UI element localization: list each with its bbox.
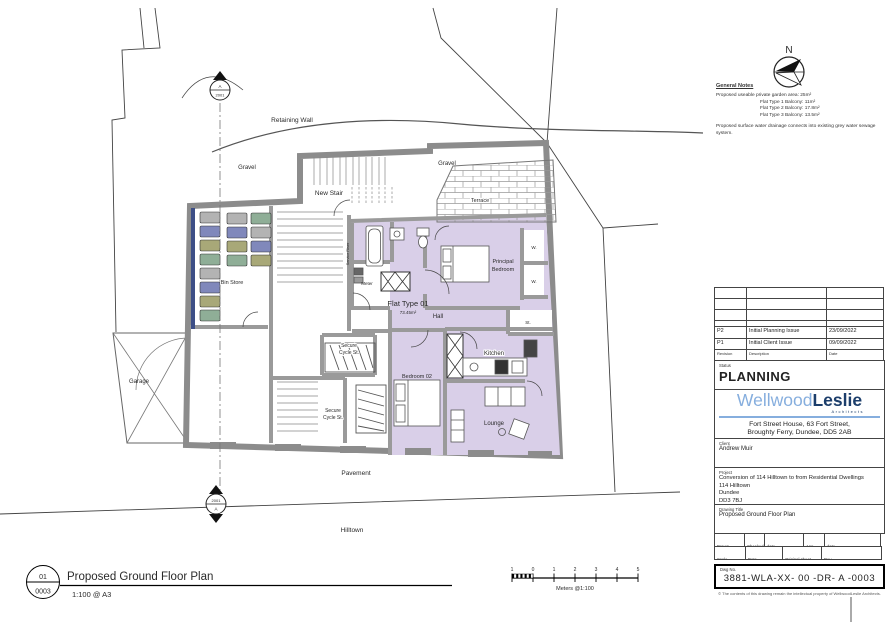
fridge [524,340,537,357]
title-block: P2 Initial Planning Issue 23/09/2022 P1 … [714,288,885,596]
wc [417,228,429,236]
bedroom-02-label: Bedroom 02 [402,374,432,380]
bin-store-label: Bin Store [221,280,244,286]
svg-text:2001: 2001 [216,93,226,98]
svg-text:1: 1 [511,567,514,573]
wellwood-leslie-logo: WellwoodLeslie [717,392,882,410]
client-name: Andrew Muir [719,446,880,452]
project-line: 114 Hilltown [719,483,880,491]
drawing-number-box: Dwg No. 3881-WLA-XX- 00 -DR- A -0003 [714,564,885,589]
project-box: Project Conversion of 114 Hilltown to fr… [714,467,885,505]
sink [390,228,404,240]
svg-text:2001: 2001 [212,498,222,503]
status-value: PLANNING [719,369,880,384]
svg-text:1: 1 [553,567,556,573]
drawing-sheet: A 2001 2001 A Retaining Wall Gravel Grav… [0,0,886,624]
project-line: Dundee [719,490,880,498]
drawing-title-box: Drawing Title Proposed Ground Floor Plan [714,504,885,534]
flat-area-label: 73.45m² [400,310,417,315]
scale-bar-label: Meters @1:100 [556,586,594,592]
sofa [485,387,525,406]
hilltown-label: Hilltown [341,527,364,534]
logo-rule [719,416,880,418]
client-box: Client Andrew Muir [714,438,885,468]
general-notes-title: General Notes [716,83,884,90]
secure-cycle-top-label: Secure [341,343,357,349]
logo-box: WellwoodLeslie Architects Fort Street Ho… [714,389,885,439]
svg-text:2: 2 [574,567,577,573]
project-line: Conversion of 114 Hilltown to from Resid… [719,475,880,483]
garage-label: Garage [129,379,150,385]
footer-scale-note: 1:100 @ A3 [72,590,111,599]
service-riser-label: Service Riser [346,242,350,265]
meta-row-1: DrawnRIH CheckedS.McP dateSept 22' AppS.… [714,533,885,547]
oven [495,360,508,374]
flat-type-label: Flat Type 01 [387,299,428,308]
kitchen-label: Kitchen [484,351,504,357]
gravel-right-label: Gravel [438,161,456,167]
north-arrow-icon: N [774,45,804,87]
section-marker-top: A 2001 [210,71,230,100]
terrace-area [437,160,556,222]
gravel-left-label: Gravel [238,165,256,171]
shelf [451,410,464,442]
copyright-line: © The contents of this drawing remain th… [714,591,885,596]
pavement-label: Pavement [341,470,370,477]
wardrobe-bottom-label: W. [531,279,536,284]
meter-label: Meter [361,281,373,286]
revision-header-row: Revision Description Date [714,349,885,361]
garage-area [113,333,188,443]
svg-text:Cycle St.: Cycle St. [323,415,343,421]
section-marker-bottom: 2001 A [206,485,226,523]
lounge-label: Lounge [484,421,505,427]
note-paragraph: Proposed surface water drainage connects… [716,124,884,137]
status-box: Status PLANNING [714,360,885,390]
meter-box [354,268,363,275]
svg-text:0: 0 [532,567,535,573]
drawing-title-marker: 01 0003 [27,566,60,599]
footer-drawing-title: Proposed Ground Floor Plan [67,571,213,583]
principal-bedroom-label: Principal [492,259,513,265]
address-line-2: Broughty Ferry, Dundee, DD5 2AB [717,429,882,437]
wardrobe-top-label: W. [531,245,536,250]
scale-bar: 1 0 1 2 3 4 5 Meters @1:100 [511,567,640,592]
status-label: Status [719,363,880,368]
general-notes: General Notes Proposed useable private g… [716,83,884,137]
footer-title: Proposed Ground Floor Plan 1:100 @ A3 [60,571,452,599]
drawing-title-value: Proposed Ground Floor Plan [719,512,880,518]
revision-table: P2 Initial Planning Issue 23/09/2022 P1 … [714,287,885,361]
new-stair-label: New Stair [315,190,344,197]
detail-number: 01 [39,574,47,581]
svg-text:Bedroom: Bedroom [492,267,515,273]
drawing-number: 3881-WLA-XX- 00 -DR- A -0003 [720,572,879,586]
north-label: N [785,45,792,56]
address-line-1: Fort Street House, 63 Fort Street, [717,421,882,429]
note-line: Flat Type 3 Balcony: 13.5m² [716,113,884,119]
svg-text:A: A [218,84,221,89]
svg-text:4: 4 [616,567,619,573]
svg-text:3: 3 [595,567,598,573]
svg-text:5: 5 [637,567,640,573]
terrace-label: Terrace [471,198,489,204]
sheet-number: 0003 [35,589,51,596]
store-label: St. [525,320,531,325]
svg-text:Cycle St.: Cycle St. [339,350,359,356]
retaining-wall-label: Retaining Wall [271,117,313,124]
meta-row-2: Scale1:100 DateSept 22' Original sheet s… [714,546,885,560]
svg-text:A: A [214,507,217,512]
hall-label: Hall [433,314,443,320]
secure-cycle-bottom-label: Secure [325,408,341,414]
